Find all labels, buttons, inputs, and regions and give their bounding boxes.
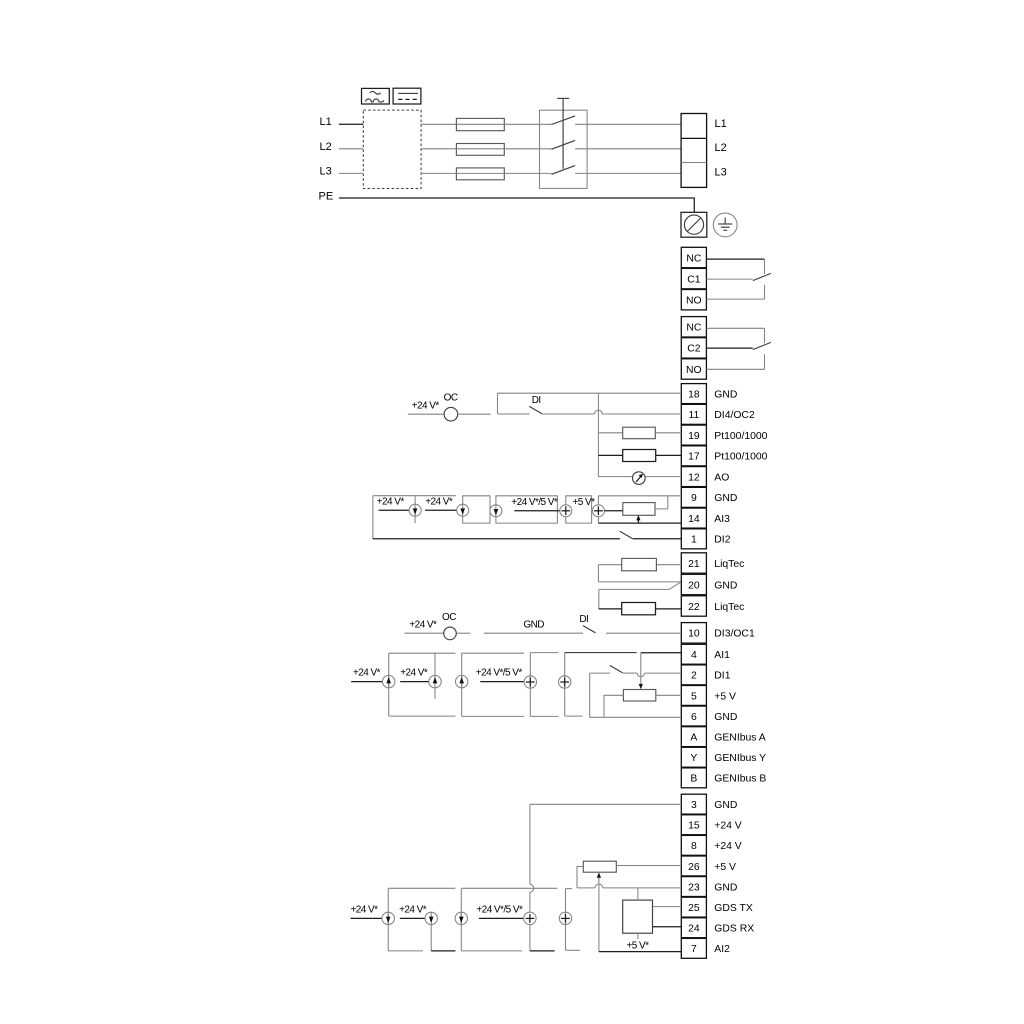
svg-text:+5 V*: +5 V*: [573, 497, 596, 508]
svg-text:GND: GND: [714, 580, 737, 591]
svg-text:Y: Y: [690, 753, 697, 764]
svg-text:+24 V*: +24 V*: [400, 668, 428, 679]
svg-text:+24 V*: +24 V*: [377, 497, 405, 508]
svg-text:PE: PE: [319, 190, 334, 202]
svg-text:12: 12: [688, 472, 700, 483]
svg-text:GENIbus B: GENIbus B: [714, 774, 766, 785]
svg-text:DI1: DI1: [714, 671, 730, 682]
svg-text:GND: GND: [714, 800, 737, 811]
svg-text:19: 19: [688, 431, 700, 442]
svg-text:+24 V*/5 V*: +24 V*/5 V*: [476, 905, 523, 916]
svg-text:DI: DI: [532, 395, 541, 406]
svg-text:L1: L1: [715, 118, 727, 130]
svg-text:24: 24: [688, 924, 700, 935]
svg-text:AI1: AI1: [714, 650, 730, 661]
svg-text:NO: NO: [686, 296, 702, 307]
svg-text:7: 7: [691, 944, 697, 955]
svg-text:1: 1: [691, 535, 697, 546]
svg-text:AI3: AI3: [714, 514, 730, 525]
svg-text:B: B: [690, 774, 697, 785]
svg-text:L3: L3: [715, 166, 727, 178]
svg-text:DI2: DI2: [714, 535, 730, 546]
svg-text:GENIbus Y: GENIbus Y: [714, 753, 766, 764]
svg-text:2: 2: [691, 671, 697, 682]
svg-text:AI2: AI2: [714, 944, 730, 955]
svg-text:Pt100/1000: Pt100/1000: [714, 452, 767, 463]
svg-text:+24 V*: +24 V*: [353, 668, 381, 679]
svg-text:DI3/OC1: DI3/OC1: [714, 629, 755, 640]
svg-text:+24 V: +24 V: [714, 841, 742, 852]
svg-text:GND: GND: [714, 882, 737, 893]
svg-text:L1: L1: [320, 116, 332, 128]
svg-text:GDS RX: GDS RX: [714, 924, 754, 935]
svg-text:11: 11: [688, 410, 699, 421]
svg-text:22: 22: [688, 602, 700, 613]
svg-text:A: A: [690, 732, 697, 743]
svg-text:3: 3: [691, 800, 697, 811]
svg-text:LiqTec: LiqTec: [714, 559, 744, 570]
svg-text:+5 V: +5 V: [714, 691, 736, 702]
svg-text:+24 V*: +24 V*: [412, 400, 440, 411]
svg-text:L2: L2: [320, 141, 332, 153]
svg-text:10: 10: [688, 629, 700, 640]
svg-text:C1: C1: [687, 274, 701, 285]
svg-text:+5 V: +5 V: [714, 862, 736, 873]
svg-text:17: 17: [688, 452, 700, 463]
svg-text:DI: DI: [579, 614, 588, 625]
svg-text:8: 8: [691, 841, 697, 852]
svg-text:25: 25: [688, 903, 700, 914]
svg-text:GND: GND: [714, 712, 737, 723]
svg-text:Pt100/1000: Pt100/1000: [714, 431, 767, 442]
svg-text:+24 V*: +24 V*: [409, 620, 437, 631]
svg-text:NO: NO: [686, 365, 702, 376]
svg-text:20: 20: [688, 580, 700, 591]
svg-text:6: 6: [691, 712, 697, 723]
svg-text:26: 26: [688, 862, 700, 873]
svg-text:+24 V*/5 V*: +24 V*/5 V*: [476, 668, 523, 679]
svg-text:DI4/OC2: DI4/OC2: [714, 410, 755, 421]
svg-text:NC: NC: [686, 323, 702, 334]
svg-text:9: 9: [691, 493, 697, 504]
svg-text:14: 14: [688, 514, 700, 525]
svg-text:OC: OC: [444, 393, 458, 404]
svg-text:4: 4: [691, 650, 697, 661]
svg-text:GENIbus A: GENIbus A: [714, 732, 765, 743]
svg-text:+24 V*: +24 V*: [425, 497, 453, 508]
svg-text:LiqTec: LiqTec: [714, 602, 744, 613]
svg-text:+24 V*/5 V*: +24 V*/5 V*: [511, 497, 558, 508]
svg-text:21: 21: [688, 559, 700, 570]
svg-text:L3: L3: [320, 166, 332, 178]
svg-text:+24 V*: +24 V*: [399, 905, 427, 916]
svg-text:18: 18: [688, 389, 700, 400]
svg-text:L2: L2: [715, 142, 727, 154]
svg-text:NC: NC: [686, 253, 702, 264]
svg-text:15: 15: [688, 821, 700, 832]
svg-text:23: 23: [688, 882, 700, 893]
svg-text:+24 V: +24 V: [714, 821, 742, 832]
svg-text:GDS TX: GDS TX: [714, 903, 753, 914]
svg-text:GND: GND: [714, 493, 737, 504]
svg-text:C2: C2: [687, 344, 701, 355]
svg-text:+24 V*: +24 V*: [351, 905, 379, 916]
svg-text:+5 V*: +5 V*: [627, 941, 650, 952]
svg-text:AO: AO: [714, 472, 729, 483]
svg-text:GND: GND: [714, 389, 737, 400]
svg-text:OC: OC: [442, 612, 456, 623]
svg-text:GND: GND: [523, 620, 544, 631]
svg-text:5: 5: [691, 691, 697, 702]
